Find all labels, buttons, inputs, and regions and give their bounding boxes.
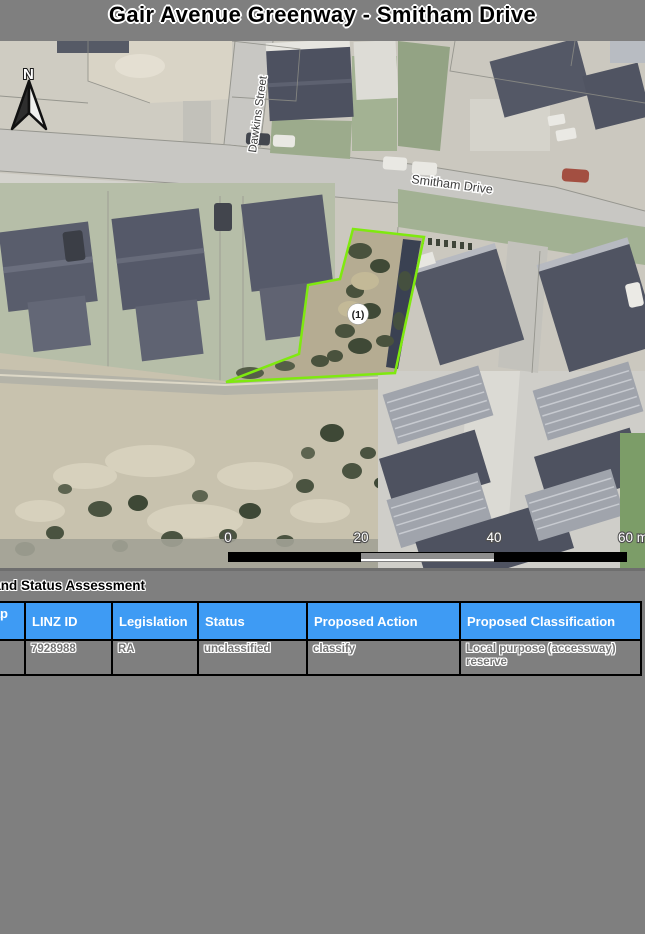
land-status-table: Map ID LINZ ID Legislation Status Propos… bbox=[0, 601, 642, 676]
building-roof bbox=[354, 41, 399, 100]
building-roof bbox=[57, 41, 129, 53]
scale-tick-0: 0 bbox=[224, 530, 232, 545]
scale-tick-60: 60 m bbox=[618, 530, 645, 545]
col-header-proposed-action: Proposed Action bbox=[307, 602, 460, 640]
cell-proposed-action: classify bbox=[307, 640, 460, 675]
site-marker-label: (1) bbox=[352, 309, 365, 321]
red-car bbox=[562, 168, 590, 183]
green-strip bbox=[620, 433, 645, 571]
site-marker: (1) bbox=[348, 304, 369, 325]
aerial-map: (1) Dawkins Street Smitham Drive N 0 20 … bbox=[0, 41, 645, 571]
cell-legislation: RA bbox=[112, 640, 198, 675]
north-label: N bbox=[23, 66, 34, 83]
cell-map-id bbox=[0, 640, 25, 675]
cell-status: unclassified bbox=[198, 640, 307, 675]
cell-linz-id: 7928988 bbox=[25, 640, 112, 675]
car bbox=[62, 230, 86, 262]
cell-proposed-classification: Local purpose (accessway) reserve bbox=[460, 640, 641, 675]
report-page: Gair Avenue Greenway - Smitham Drive bbox=[0, 0, 645, 934]
assessment-heading: Land Status Assessment bbox=[0, 578, 145, 593]
house-roof bbox=[610, 41, 645, 63]
map-bottom-border bbox=[0, 568, 645, 571]
col-header-legislation: Legislation bbox=[112, 602, 198, 640]
table-row: 7928988 RA unclassified classify Local p… bbox=[0, 640, 641, 675]
table-header-row: Map ID LINZ ID Legislation Status Propos… bbox=[0, 602, 641, 640]
car bbox=[383, 156, 408, 171]
col-header-map-id: Map ID bbox=[0, 602, 25, 640]
col-header-status: Status bbox=[198, 602, 307, 640]
car bbox=[214, 203, 232, 231]
scale-tick-40: 40 bbox=[486, 530, 501, 545]
car bbox=[273, 134, 296, 147]
col-header-linz-id: LINZ ID bbox=[25, 602, 112, 640]
building-roof bbox=[266, 41, 354, 121]
scale-tick-20: 20 bbox=[353, 530, 368, 545]
col-header-proposed-classification: Proposed Classification bbox=[460, 602, 641, 640]
aerial-photo: (1) Dawkins Street Smitham Drive N 0 20 … bbox=[0, 41, 645, 571]
page-title: Gair Avenue Greenway - Smitham Drive bbox=[0, 2, 645, 28]
